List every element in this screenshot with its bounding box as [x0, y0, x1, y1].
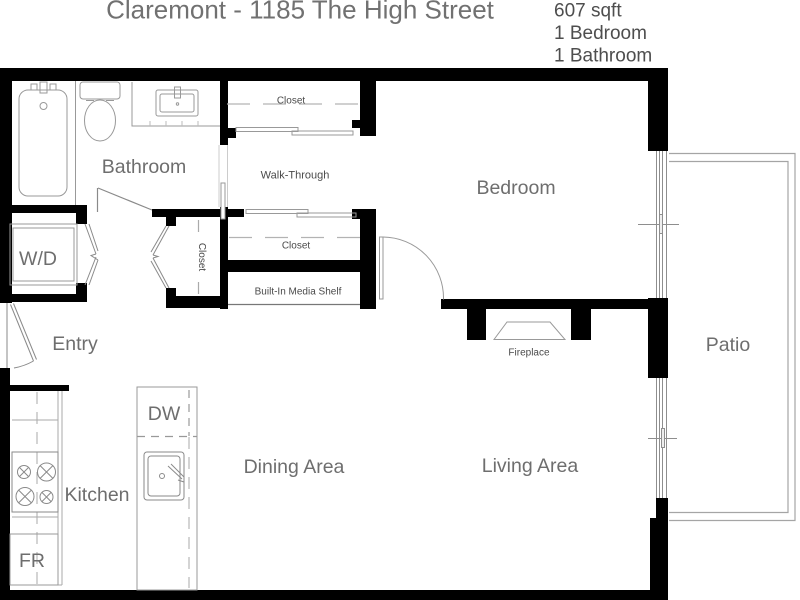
svg-text:Bathroom: Bathroom [102, 156, 187, 178]
svg-text:607 sqft: 607 sqft [554, 1, 622, 22]
svg-text:Closet: Closet [196, 243, 207, 272]
svg-text:1 Bedroom: 1 Bedroom [554, 23, 647, 44]
svg-text:1 Bathroom: 1 Bathroom [554, 46, 652, 67]
svg-text:Fireplace: Fireplace [508, 348, 550, 359]
svg-text:Patio: Patio [706, 334, 751, 356]
svg-text:Bedroom: Bedroom [476, 177, 555, 199]
svg-text:W/D: W/D [19, 248, 57, 270]
svg-text:Claremont - 1185 The High Stre: Claremont - 1185 The High Street [106, 0, 495, 25]
svg-text:Kitchen: Kitchen [64, 484, 129, 506]
svg-text:Closet: Closet [282, 241, 311, 252]
svg-text:Built-In Media Shelf: Built-In Media Shelf [255, 287, 342, 298]
svg-text:Closet: Closet [277, 96, 306, 107]
svg-text:Entry: Entry [52, 333, 98, 355]
svg-text:DW: DW [148, 403, 181, 425]
svg-text:Living Area: Living Area [482, 455, 579, 477]
svg-text:Walk-Through: Walk-Through [261, 170, 330, 182]
svg-text:FR: FR [19, 550, 45, 572]
svg-text:Dining Area: Dining Area [244, 456, 345, 478]
